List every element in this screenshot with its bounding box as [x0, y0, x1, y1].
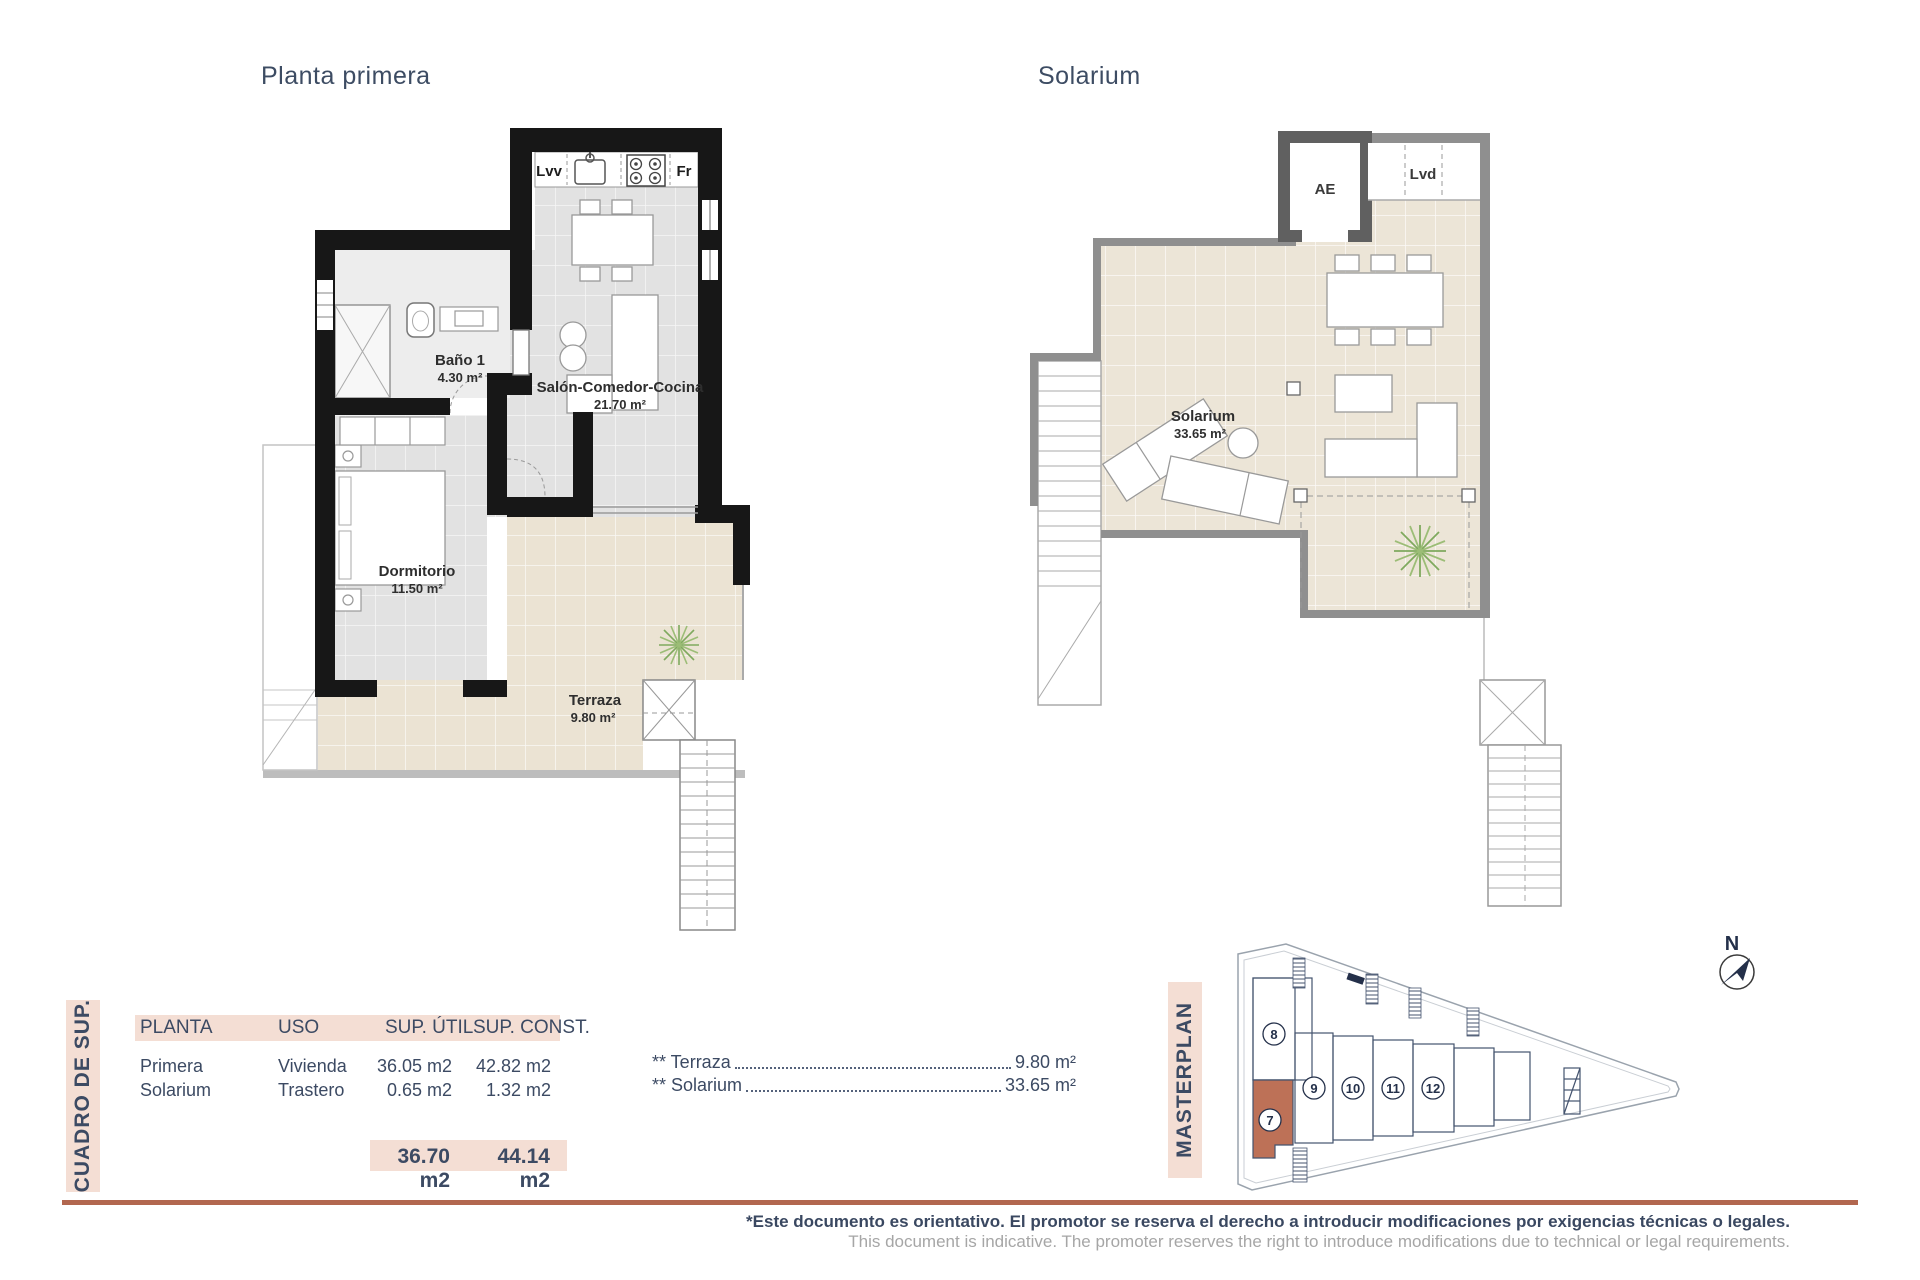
svg-text:33.65 m²: 33.65 m²: [1174, 426, 1227, 441]
svg-text:10: 10: [1346, 1081, 1360, 1096]
svg-text:7: 7: [1266, 1113, 1273, 1128]
summary-side-strip: CUADRO DE SUP.: [66, 1000, 100, 1192]
masterplan-side-label: MASTERPLAN: [1173, 1002, 1197, 1158]
svg-text:11.50 m²: 11.50 m²: [391, 581, 443, 596]
stove-icon: [627, 155, 665, 186]
kitchen-counter: Lvv Fr: [535, 151, 698, 187]
svg-text:N: N: [1725, 933, 1739, 955]
solarium-dining-set: [1327, 255, 1443, 345]
svg-text:Baño 1: Baño 1: [435, 352, 485, 369]
footer-rule: [62, 1200, 1858, 1205]
first-floor-plan: Lvv Fr: [255, 115, 820, 960]
svg-text:Solarium: Solarium: [1171, 408, 1235, 425]
terrace-floor-upper: [507, 517, 743, 680]
solarium-plan: AE Lvd: [835, 95, 1570, 945]
table-cell: Vivienda: [278, 1056, 347, 1077]
summary-side-label: CUADRO DE SUP.: [71, 999, 95, 1192]
svg-text:12: 12: [1426, 1081, 1440, 1096]
table-row: Primera: [140, 1056, 203, 1077]
col-header-util: SUP. ÚTIL: [385, 1017, 473, 1039]
fridge-label: Fr: [677, 163, 692, 180]
round-table: [1228, 428, 1258, 458]
room-label-terrace: Terraza 9.80 m²: [569, 692, 622, 725]
svg-text:AE: AE: [1315, 181, 1336, 198]
svg-text:9.80 m²: 9.80 m²: [571, 710, 616, 725]
table-cell: 36.05 m2: [370, 1056, 452, 1077]
solarium-right-stair: [1480, 618, 1561, 906]
shower: [335, 305, 390, 398]
coffee-table: [1335, 375, 1392, 412]
svg-text:11: 11: [1386, 1081, 1400, 1096]
wardrobe: [340, 417, 445, 445]
masterplan-side-strip: MASTERPLAN: [1168, 982, 1202, 1178]
elevator-ae: AE: [1278, 131, 1372, 242]
annotation-value: 9.80 m²: [1015, 1052, 1076, 1073]
svg-text:Lvd: Lvd: [1410, 166, 1437, 183]
solarium-left-stair: [1038, 361, 1101, 705]
svg-text:4.30 m²: 4.30 m²: [438, 370, 483, 385]
total-const: 44.14 m2: [468, 1145, 550, 1193]
table-row: Solarium: [140, 1080, 211, 1101]
table-cell: 1.32 m2: [468, 1080, 551, 1101]
dotted-leader: [746, 1090, 1001, 1092]
annotation-label: ** Solarium: [652, 1075, 742, 1096]
vanity: [440, 307, 498, 331]
left-outdoor-stair: [263, 445, 317, 770]
plant-icon: [1394, 525, 1446, 577]
pocket-door: [513, 330, 529, 375]
first-floor-title: Planta primera: [261, 62, 431, 91]
svg-text:Dormitorio: Dormitorio: [379, 563, 456, 580]
masterplan-map: 8 9 10 11 12 7 N: [1230, 930, 1830, 1220]
svg-text:Terraza: Terraza: [569, 692, 622, 709]
col-header-const: SUP. CONST.: [473, 1017, 590, 1039]
plant-icon: [659, 625, 699, 665]
room-label-bathroom: Baño 1 4.30 m²: [435, 352, 485, 385]
toilet: [407, 303, 434, 337]
total-util: 36.70 m2: [372, 1145, 450, 1193]
terrace-border: [263, 770, 745, 778]
dotted-leader: [735, 1067, 1011, 1069]
col-header-uso: USO: [278, 1017, 319, 1039]
annotation-label: ** Terraza: [652, 1052, 731, 1073]
annotation-solarium: ** Solarium 33.65 m²: [652, 1075, 1076, 1096]
annotation-value: 33.65 m²: [1005, 1075, 1076, 1096]
annotation-terraza: ** Terraza 9.80 m²: [652, 1052, 1076, 1073]
svg-text:8: 8: [1270, 1027, 1277, 1042]
table-cell: Trastero: [278, 1080, 344, 1101]
footer-disclaimer-es: *Este documento es orientativo. El promo…: [620, 1212, 1790, 1232]
col-header-planta: PLANTA: [140, 1017, 213, 1039]
solarium-title: Solarium: [1038, 62, 1141, 91]
table-cell: 0.65 m2: [370, 1080, 452, 1101]
laundry-lvd: Lvd: [1368, 143, 1480, 200]
svg-text:Salón-Comedor-Cocina: Salón-Comedor-Cocina: [537, 379, 704, 396]
room-label-solarium: Solarium 33.65 m²: [1171, 408, 1235, 441]
svg-text:9: 9: [1310, 1081, 1317, 1096]
entry-stair: [643, 680, 735, 930]
table-cell: 42.82 m2: [468, 1056, 551, 1077]
svg-text:21.70 m²: 21.70 m²: [594, 397, 647, 412]
footer-disclaimer-en: This document is indicative. The promote…: [620, 1232, 1790, 1252]
north-compass-icon: N: [1720, 933, 1754, 989]
dishwasher-label: Lvv: [536, 163, 563, 180]
